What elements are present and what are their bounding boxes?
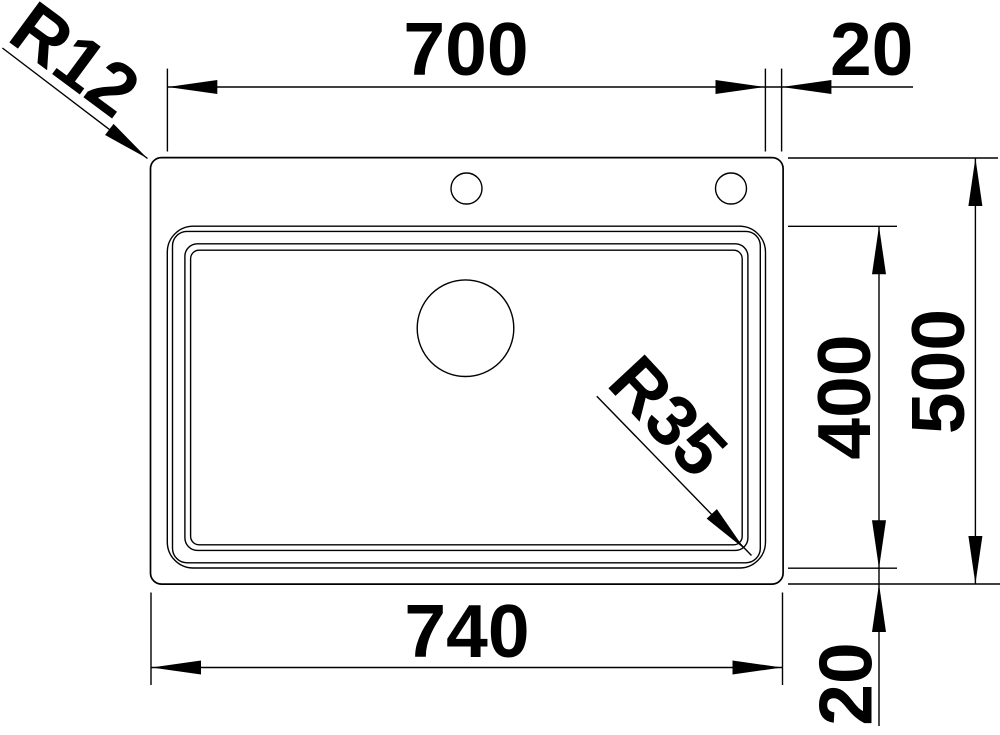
svg-text:R35: R35 — [593, 341, 742, 492]
svg-text:500: 500 — [896, 309, 980, 434]
svg-text:20: 20 — [804, 642, 888, 725]
svg-text:740: 740 — [404, 589, 529, 673]
svg-text:R12: R12 — [0, 0, 154, 133]
svg-text:20: 20 — [830, 7, 913, 91]
svg-text:700: 700 — [403, 7, 528, 91]
svg-text:400: 400 — [802, 334, 886, 459]
